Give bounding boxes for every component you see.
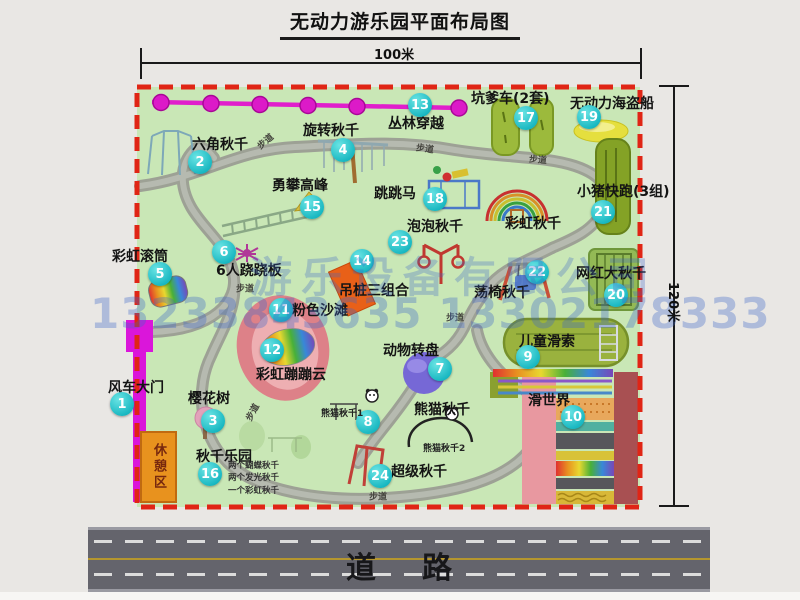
height-dimension-label: 120米 [665,282,684,322]
road-label: 道路 [88,543,710,587]
rest-area: 休憩区 [140,431,177,503]
width-dimension-label: 100米 [374,44,414,63]
page-title: 无动力游乐园平面布局图 [280,7,520,40]
big-swing-icon [589,249,638,310]
kids-zipline-icon [504,319,628,366]
bottom-strip [0,592,800,600]
animal-turntable-icon [403,352,445,394]
piggy-run-icon [596,139,630,234]
screenshot-page: 无动力游乐园平面布局图 100米 120米 [0,0,800,600]
rest-area-label: 休憩区 [149,443,168,491]
road: 道路 [88,527,710,592]
